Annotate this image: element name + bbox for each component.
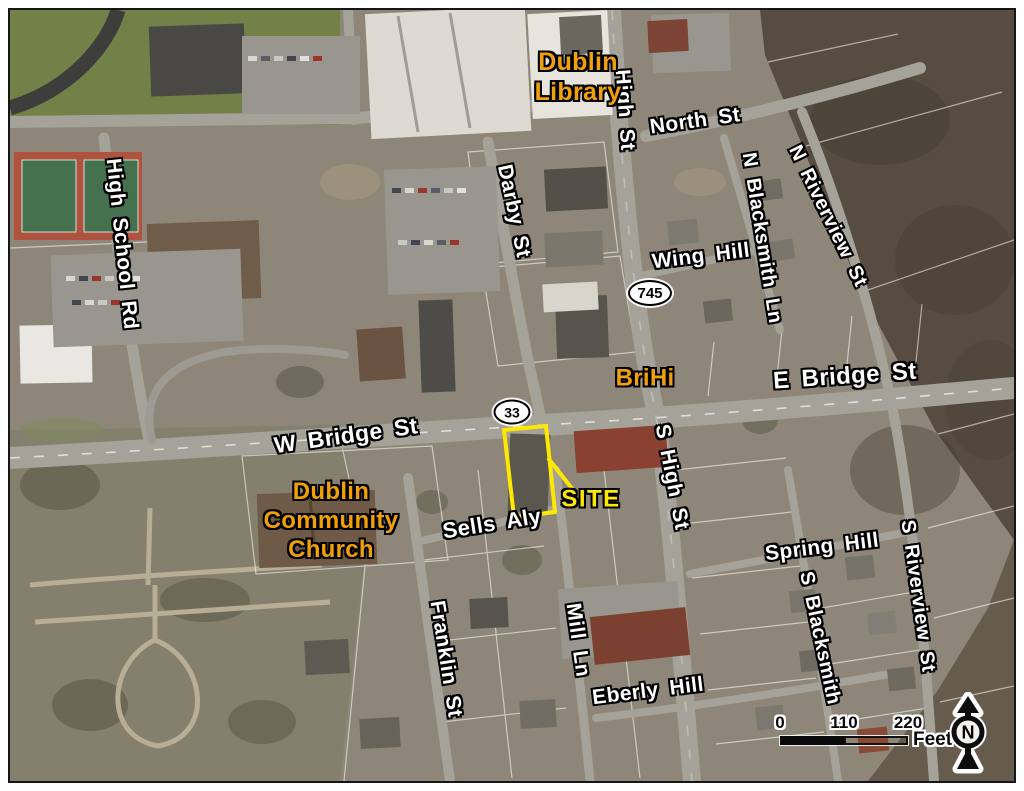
scale-segment-hollow — [844, 736, 908, 745]
scale-bar: 0 110 220 Feet — [780, 713, 908, 755]
aerial-basemap — [0, 0, 1024, 791]
aerial-map: North StHigh StN Riverview StN Blacksmit… — [0, 0, 1024, 791]
scale-bar-line — [780, 736, 908, 745]
scale-segment-solid — [780, 736, 844, 745]
scale-tick-110: 110 — [830, 713, 857, 733]
north-arrow: N — [944, 692, 992, 776]
scale-tick-0: 0 — [775, 713, 784, 733]
north-arrow-letter: N — [962, 723, 975, 743]
